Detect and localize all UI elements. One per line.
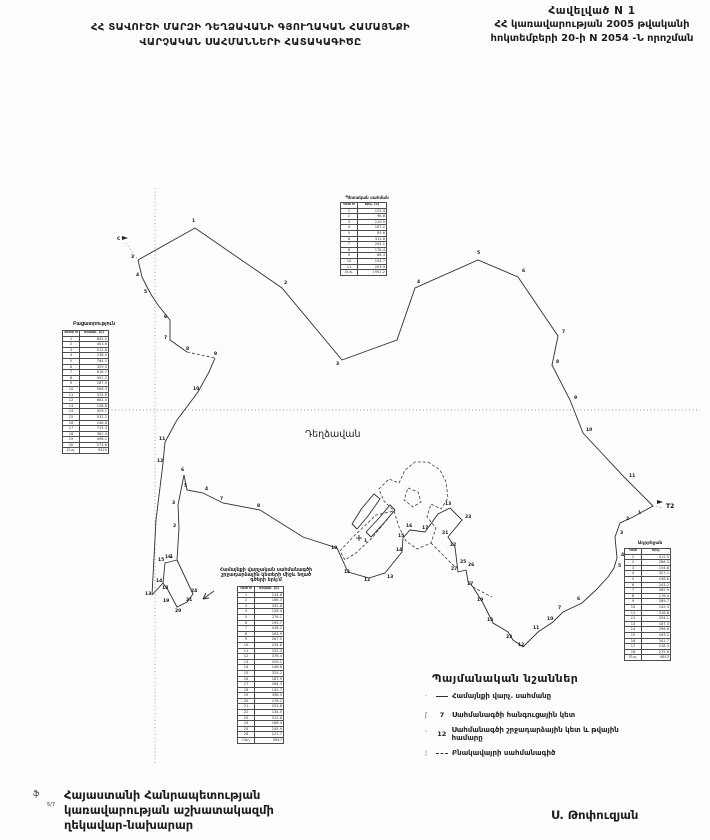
table-cell: Ընդ. (625, 655, 642, 661)
point-number-label: 24 (191, 588, 197, 594)
legend-title: Պայմանական նշաններ (432, 672, 650, 685)
settlement-label: Դեղձավան (305, 429, 361, 440)
point-number-label: 14 (156, 578, 162, 584)
dashed-line-icon (432, 749, 452, 757)
point-number-label: 13 (445, 501, 451, 507)
margin-mark: ֆ (33, 789, 39, 798)
point-number-label: 6 (181, 467, 184, 473)
point-number-label: 1 (192, 218, 195, 224)
point-number-label: 2 (284, 280, 287, 286)
boundary-line (187, 352, 215, 358)
table-cell: Ընդ. (341, 270, 358, 276)
data-table: Կետ NԵրկ. (մ)1125.4296.83210.54187.2595.… (340, 202, 387, 276)
legend-item-admin-boundary: · Համայնքի վարչ. սահմանը (420, 688, 650, 704)
point-number-label: 1 (638, 510, 641, 516)
point-number-label: 11 (533, 625, 539, 631)
table-title: Ադրբեջան (620, 541, 680, 546)
table-title-line3: գծերի երկ/մ (214, 578, 318, 583)
point-number-label: 5 (184, 483, 187, 489)
point-number-label: 15 (158, 557, 164, 563)
table-cell: 4653 (642, 655, 671, 661)
table-cell: 5847 (255, 738, 284, 744)
point-number-label: 16 (406, 523, 412, 529)
point-number-label: 4 (205, 486, 208, 492)
solid-line-icon (432, 692, 452, 700)
point-number-label: 20 (175, 608, 181, 614)
data-table: Կետի NԵրկար. (մ)1845.22403.63512.84238.4… (62, 330, 109, 454)
point-number-label: 4 (136, 272, 139, 278)
point-number-label: 25 (460, 559, 466, 565)
legend-item-turning-point: ՝ 12 Սահմանագծի շրջադարձային կետ և թվայի… (420, 726, 650, 742)
point-number-label: 23 (506, 634, 512, 640)
point-number-label: 10 (547, 616, 553, 622)
point-number-label: 14 (396, 547, 402, 553)
point-number-label: 8 (556, 359, 559, 365)
point-number-label: 12 (157, 458, 163, 464)
data-table: ԿետԵրկ.1412.52286.33154.84327.15198.6624… (624, 548, 671, 661)
boundary-line (366, 505, 395, 537)
point-number-label: 22 (450, 542, 456, 548)
point-number-label: 1 (364, 538, 367, 544)
point-number-label: 26 (468, 562, 474, 568)
point-number-label: 10 (331, 545, 337, 551)
point-number-label: 17 (467, 581, 473, 587)
table-cell: Ընդ (238, 738, 255, 744)
point-number-label: 15 (487, 617, 493, 623)
point-number-label: 12 (364, 577, 370, 583)
table-cell: 9320 (80, 448, 109, 454)
table-row: Ընդ.9320 (63, 448, 109, 454)
table-cell: 1951.2 (358, 270, 387, 276)
node-point-icon: 7 (432, 711, 452, 719)
point-number-label: 11 (344, 569, 350, 575)
point-number-label: 12 (518, 642, 524, 648)
point-number-label: 7 (220, 496, 223, 502)
boundary-line (340, 511, 394, 560)
margin-mark-number: 5/7 (47, 802, 55, 808)
flag-marker-icon (657, 500, 663, 508)
segments-table-top: Պետական սահման Կետ NԵրկ. (մ)1125.4296.83… (332, 195, 402, 276)
point-number-label: 21 (186, 597, 192, 603)
boundary-line (177, 475, 184, 560)
data-table: Կետ NԵրկար. (մ)1214.62186.33342.84128.45… (237, 586, 284, 744)
table-title: Բացատրություն (56, 322, 132, 327)
table-row: Ընդ5847 (238, 738, 284, 744)
point-number-label: 6 (577, 596, 580, 602)
point-number-label: 3 (172, 500, 175, 506)
point-number-label: 9 (214, 351, 217, 357)
point-number-label: 2 (626, 516, 629, 522)
flag-marker-icon (122, 236, 128, 244)
point-number-label: 2 (173, 523, 176, 529)
point-number-label: 7 (562, 329, 565, 335)
boundary-line (352, 494, 380, 529)
point-number-label: 7 (558, 605, 561, 611)
point-number-label: 5 (477, 250, 480, 256)
point-number-label: 27 (451, 566, 457, 572)
point-number-label: 11 (629, 473, 635, 479)
segments-table-middle: Համայնքի վարչական սահմանագծի շրջադարձայի… (214, 568, 318, 744)
segments-table-left: Բացատրություն Կետի NԵրկար. (մ)1845.22403… (56, 322, 132, 454)
point-number-label: 5 (144, 289, 147, 295)
point-number-label: 3 (620, 530, 623, 536)
table-row: Ընդ.1951.2 (341, 270, 387, 276)
point-number-label: 10 (586, 427, 592, 433)
point-number-label: C (117, 236, 121, 242)
point-number-label: 8 (257, 503, 260, 509)
signatory-line2: կառավարության աշխատակազմի (64, 803, 274, 818)
legend-tick: ʃ (420, 712, 432, 719)
point-number-label: 6 (164, 314, 167, 320)
point-number-label: 3 (131, 254, 134, 260)
signatory-title: Հայաստանի Հանրապետության կառավարության ա… (64, 788, 274, 833)
point-number-label: 17 (422, 525, 428, 531)
signatory-name: Ս. Թոփուզյան (551, 808, 638, 822)
point-number-label: 7 (164, 335, 167, 341)
point-number-label: 19 (163, 598, 169, 604)
segments-table-right: Ադրբեջան ԿետԵրկ.1412.52286.33154.84327.1… (620, 541, 680, 661)
flag-label: T2 (666, 503, 674, 510)
legend-item-node-point: ʃ 7 Սահմանագծի հանգուցային կետ (420, 707, 650, 723)
legend-tick: · (420, 693, 432, 700)
point-number-label: 8 (186, 346, 189, 352)
point-number-label: 15 (398, 533, 404, 539)
boundary-line (138, 260, 187, 352)
point-number-label: 18 (162, 585, 168, 591)
point-number-label: 23 (465, 514, 471, 520)
point-number-label: 19 (477, 597, 483, 603)
table-title: Պետական սահման (332, 195, 402, 200)
scanned-map-document: { "header": { "title_line1": "ՀՀ ՏԱՎՈՒՇԻ… (0, 0, 710, 840)
point-number-label: 11 (159, 436, 165, 442)
legend-tick: ¦ (420, 750, 432, 757)
point-number-label: 21 (442, 530, 448, 536)
turning-point-icon: 12 (432, 730, 452, 738)
boundary-line (404, 488, 421, 507)
point-number-label: 10 (193, 386, 199, 392)
point-number-label: 3 (336, 361, 339, 367)
point-number-label: 13 (387, 574, 393, 580)
point-number-label: 9 (574, 395, 577, 401)
point-number-label: 16 (165, 554, 171, 560)
legend-item-settlement-boundary: ¦ Բնակավայրի սահմանագիծ (420, 745, 650, 761)
point-number-label: 13 (145, 591, 151, 597)
signatory-line1: Հայաստանի Հանրապետության (64, 788, 274, 803)
point-number-label: 4 (417, 279, 420, 285)
boundary-line (653, 506, 663, 508)
legend-tick: ՝ (420, 731, 432, 738)
legend: Պայմանական նշաններ · Համայնքի վարչ. սահմ… (420, 672, 650, 761)
signatory-line3: ղեկավար-նախարար (64, 818, 274, 833)
table-row: Ընդ.4653 (625, 655, 671, 661)
table-cell: Ընդ. (63, 448, 80, 454)
point-number-label: 6 (522, 268, 525, 274)
